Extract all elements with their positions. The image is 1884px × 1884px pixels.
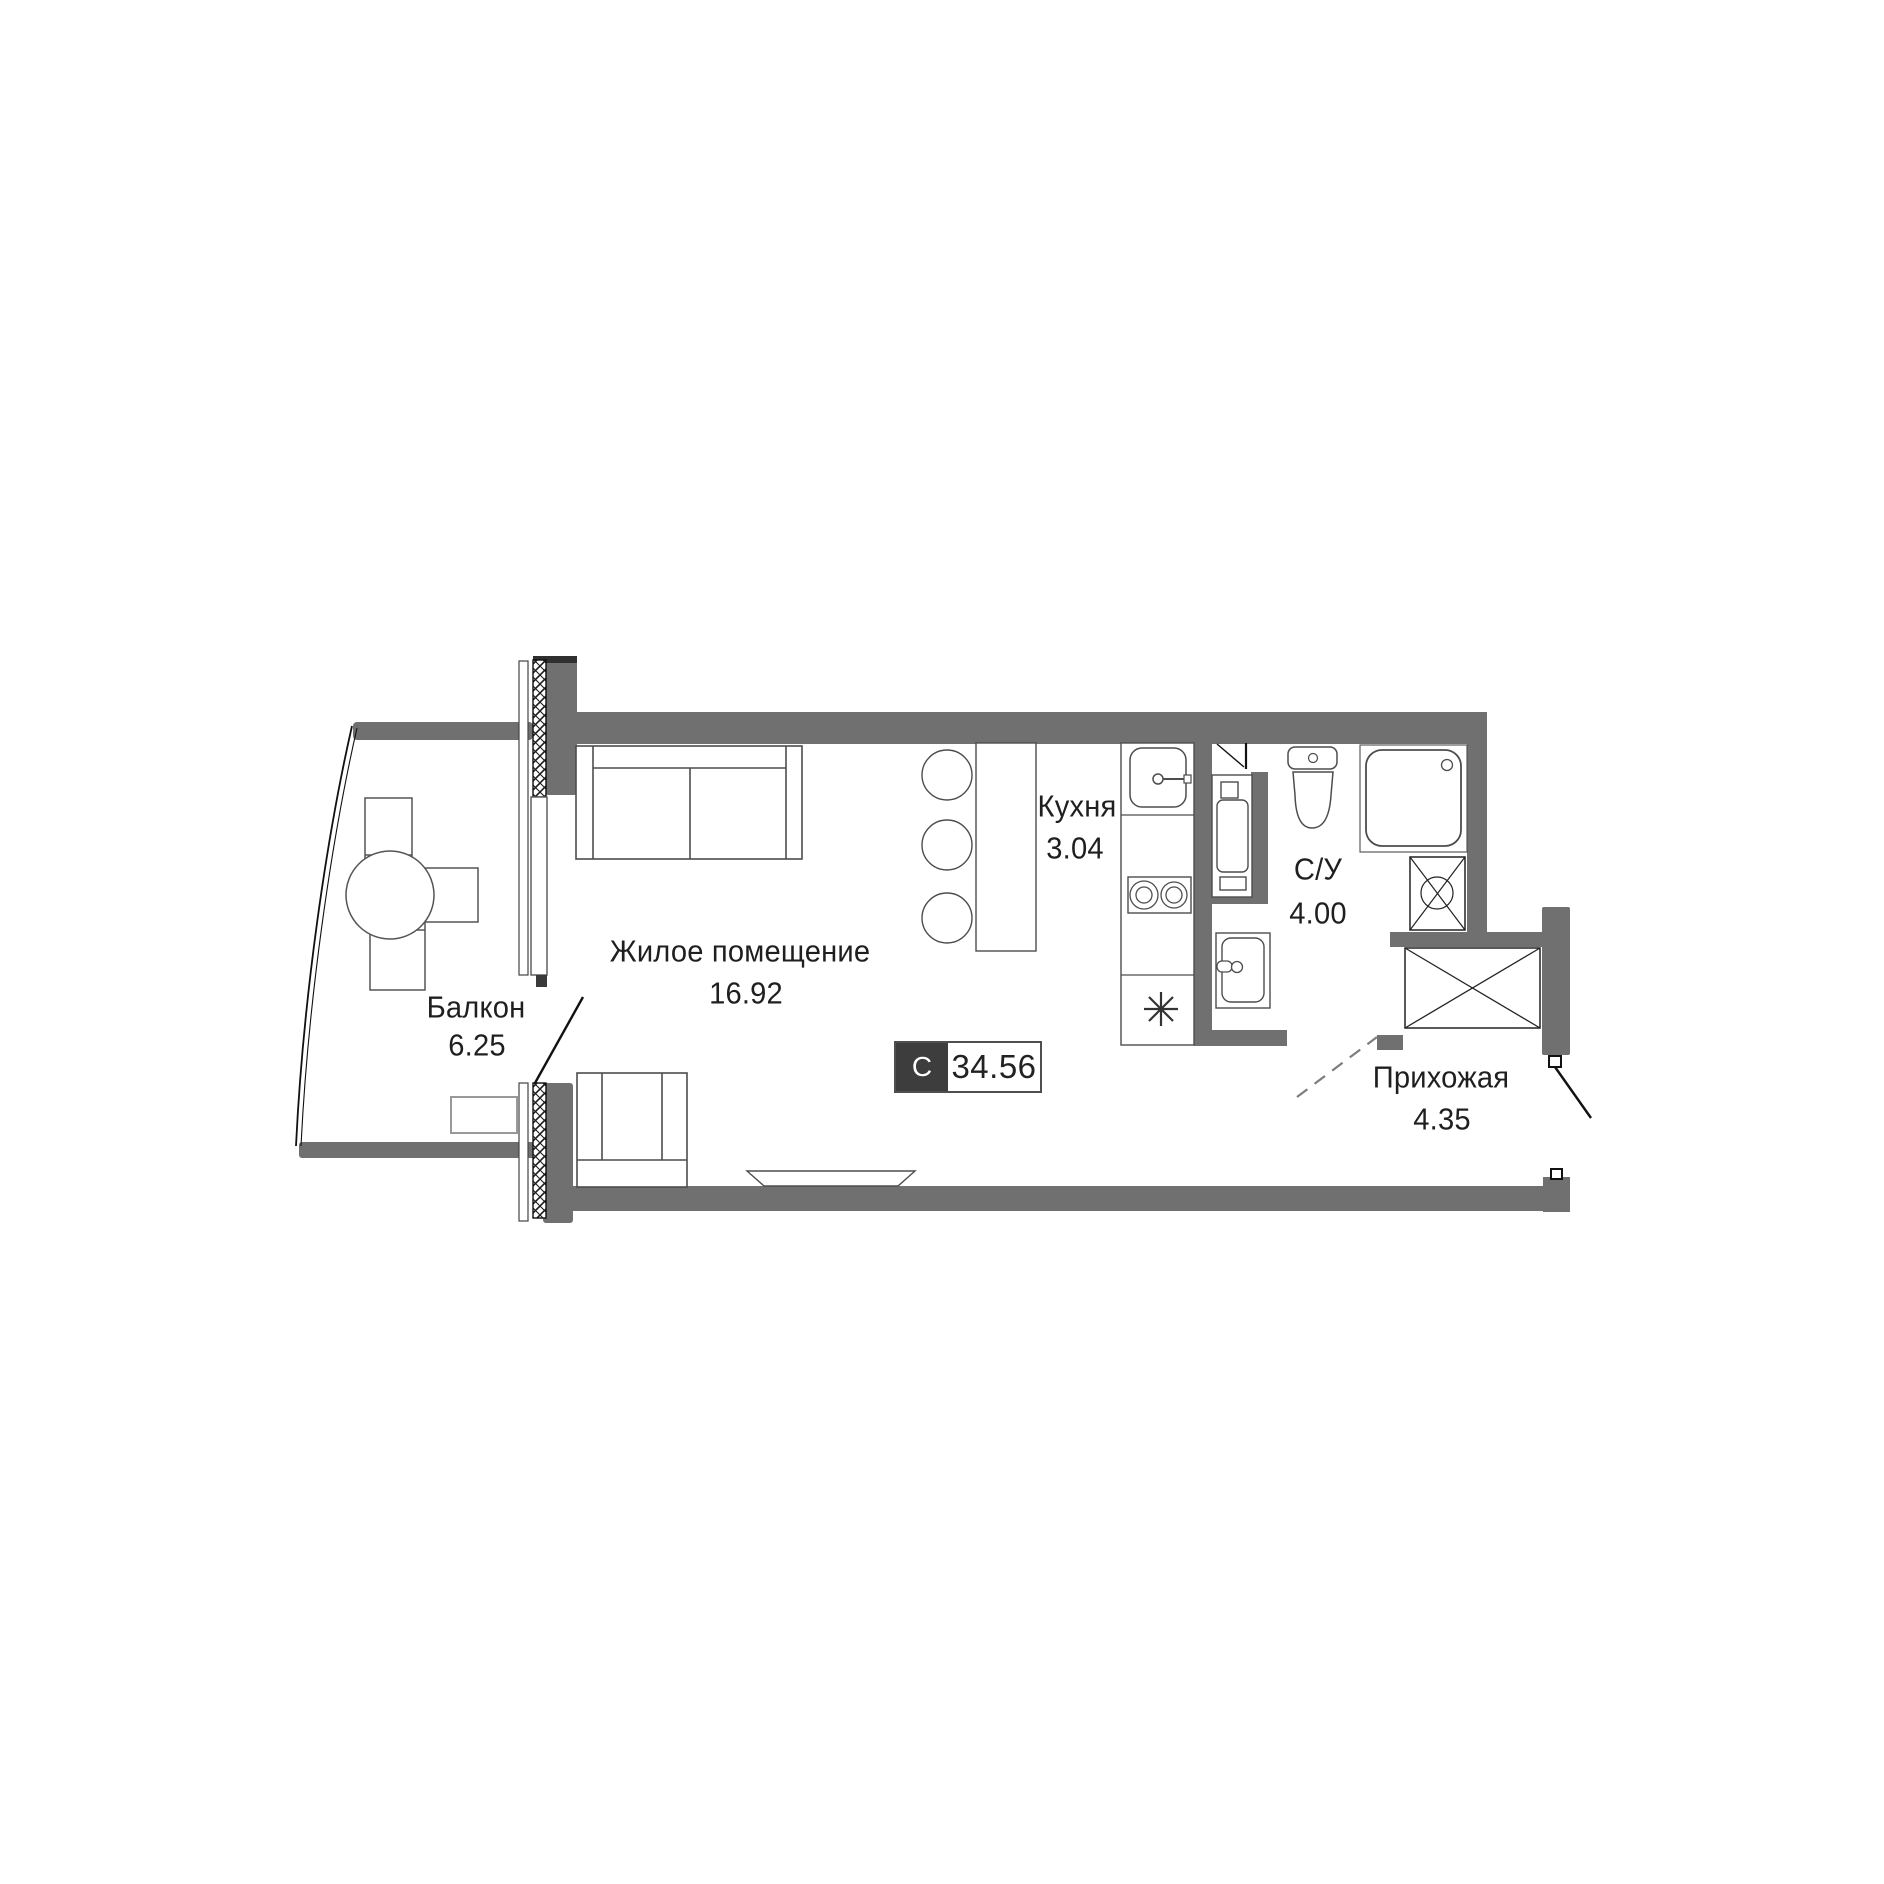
kitchen-sink-tap-tip (1184, 775, 1191, 783)
window-sill-lower (519, 1083, 528, 1221)
kitchen-sink (1130, 748, 1191, 807)
stove (1128, 877, 1191, 913)
wall-bathroom-bottom (1390, 932, 1542, 947)
balcony-door-jamb (536, 975, 547, 987)
stove-burner-left-inner (1136, 887, 1152, 903)
washbasin-tap-body (1217, 961, 1232, 972)
armchair (577, 1073, 687, 1187)
entrance-door-leaf (1555, 1067, 1591, 1118)
shower-drain (1442, 760, 1453, 771)
bathroom-area: 4.00 (1289, 898, 1346, 929)
wall-hall-right-pier (1542, 907, 1570, 1055)
wall-niche-right (1251, 772, 1268, 904)
floor-plan-page: Жилое помещение 16.92 Балкон 6.25 Кухня … (0, 0, 1884, 1884)
bar-stool-1 (922, 750, 972, 800)
bar-counter (976, 743, 1036, 951)
wall-hall-stub (1377, 1035, 1403, 1050)
entrance-door (1549, 1056, 1591, 1179)
wall-bottom (573, 1186, 1570, 1211)
wall-pier-top-left (545, 661, 577, 795)
niche-door-swing (1217, 744, 1244, 767)
toilet-tank-button (1309, 754, 1318, 763)
hallway-area: 4.35 (1413, 1104, 1470, 1135)
wall-pier-bottom-left (543, 1083, 573, 1223)
utility-niche (1212, 743, 1252, 897)
boiler-tank (1217, 800, 1248, 872)
wall-bathroom-right-pier (1467, 744, 1487, 932)
living-room-label: Жилое помещение (610, 936, 871, 967)
balcony-label: Балкон (427, 992, 526, 1023)
balcony-glazing-outer-line (296, 726, 352, 1146)
wall-top (577, 712, 1487, 744)
kitchen-sink-tap (1153, 774, 1163, 784)
toilet-bowl (1293, 772, 1333, 828)
wall-bottom-end-block (1543, 1177, 1570, 1212)
balcony-door-leaf (535, 997, 583, 1083)
bar-stool-3 (922, 893, 972, 943)
sofa-body (576, 746, 802, 859)
stove-burner-right-inner (1166, 887, 1182, 903)
balcony-area: 6.25 (448, 1030, 505, 1061)
floor-plan-drawing (0, 0, 1884, 1884)
kitchen-fixtures (1121, 743, 1194, 1045)
balcony-furniture (346, 798, 517, 1133)
shower (1360, 745, 1467, 852)
wall-kitchen-bottom (1194, 1030, 1287, 1046)
living-room-area: 16.92 (709, 978, 783, 1009)
washbasin (1216, 933, 1270, 1008)
total-area-value: 34.56 (948, 1043, 1040, 1091)
wall-balcony-bottom (299, 1142, 543, 1158)
doorstep-marker (1551, 1169, 1562, 1179)
toilet (1288, 747, 1337, 828)
balcony-glazing-inner-line (301, 728, 357, 1146)
sofa (576, 746, 802, 859)
kitchen-label: Кухня (1038, 791, 1117, 822)
balcony-bench (451, 1097, 517, 1133)
vent-shaft (1410, 857, 1465, 930)
total-area-badge: С 34.56 (894, 1041, 1042, 1093)
hatched-wall-top (533, 660, 546, 797)
kitchen-area: 3.04 (1046, 833, 1103, 864)
entrance-door-hinge (1549, 1056, 1561, 1067)
wall-balcony-top (353, 722, 533, 740)
hallway-label: Прихожая (1373, 1062, 1510, 1093)
armchair-body (577, 1073, 687, 1187)
boiler-base (1220, 877, 1246, 890)
fridge-snowflake-icon (1144, 992, 1178, 1026)
boiler-valve-box (1221, 782, 1238, 798)
hall-opening-dashed-line (1297, 1037, 1377, 1097)
window-sill-upper (519, 661, 528, 975)
unit-type-letter: С (896, 1043, 948, 1091)
hatched-wall-bottom (533, 1083, 546, 1218)
washbasin-tap-head (1232, 962, 1243, 973)
bar-stool-2 (922, 820, 972, 870)
tv (747, 1171, 915, 1186)
balcony-table (346, 851, 434, 939)
wardrobe (1405, 948, 1540, 1028)
balcony-window (531, 797, 547, 975)
bathroom-label: С/У (1294, 854, 1342, 885)
